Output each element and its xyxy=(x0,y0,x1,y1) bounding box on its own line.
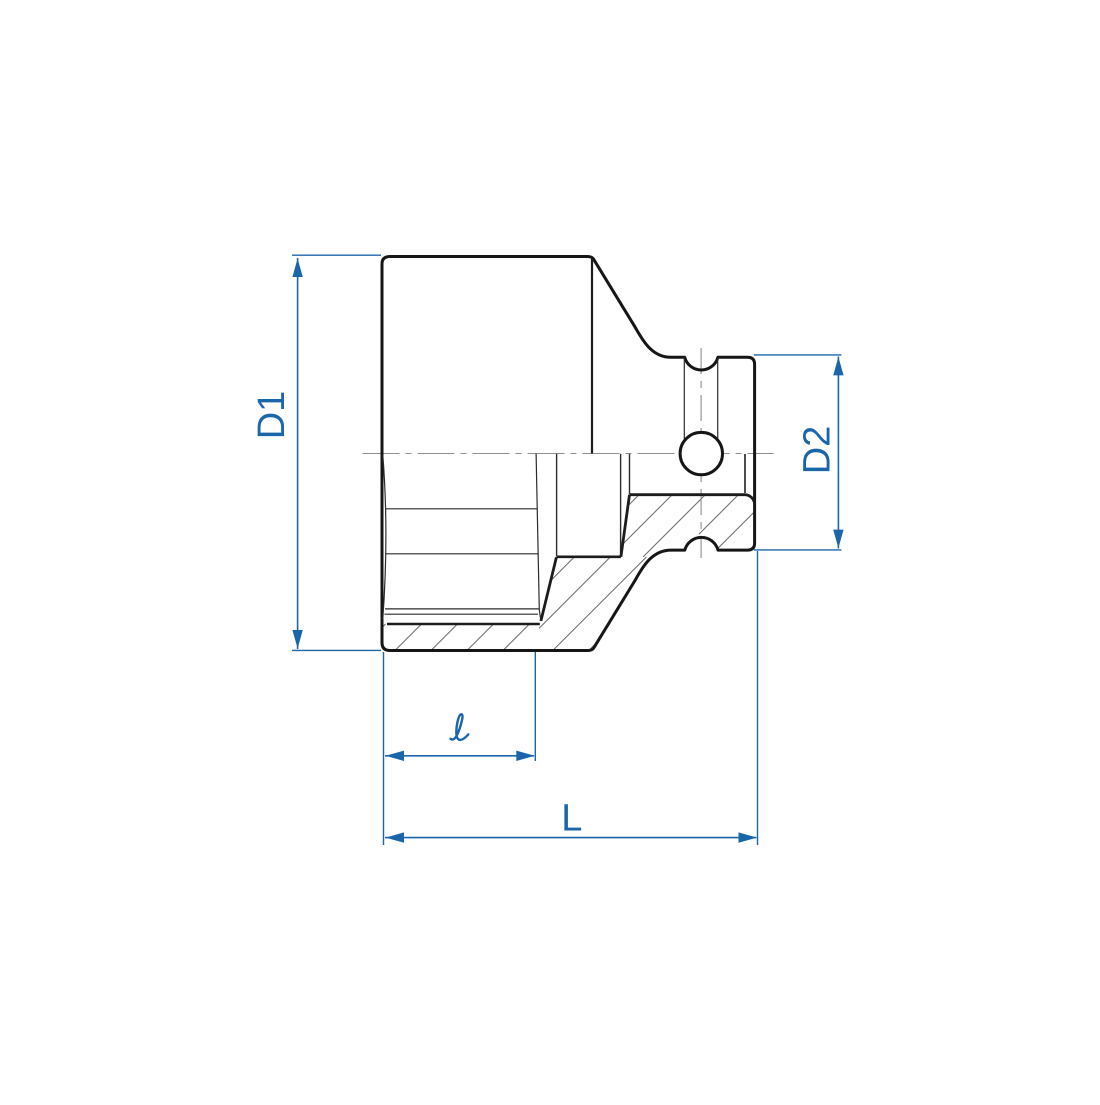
svg-text:D2: D2 xyxy=(796,426,838,475)
svg-text:D1: D1 xyxy=(251,391,293,440)
svg-text:L: L xyxy=(561,798,582,840)
